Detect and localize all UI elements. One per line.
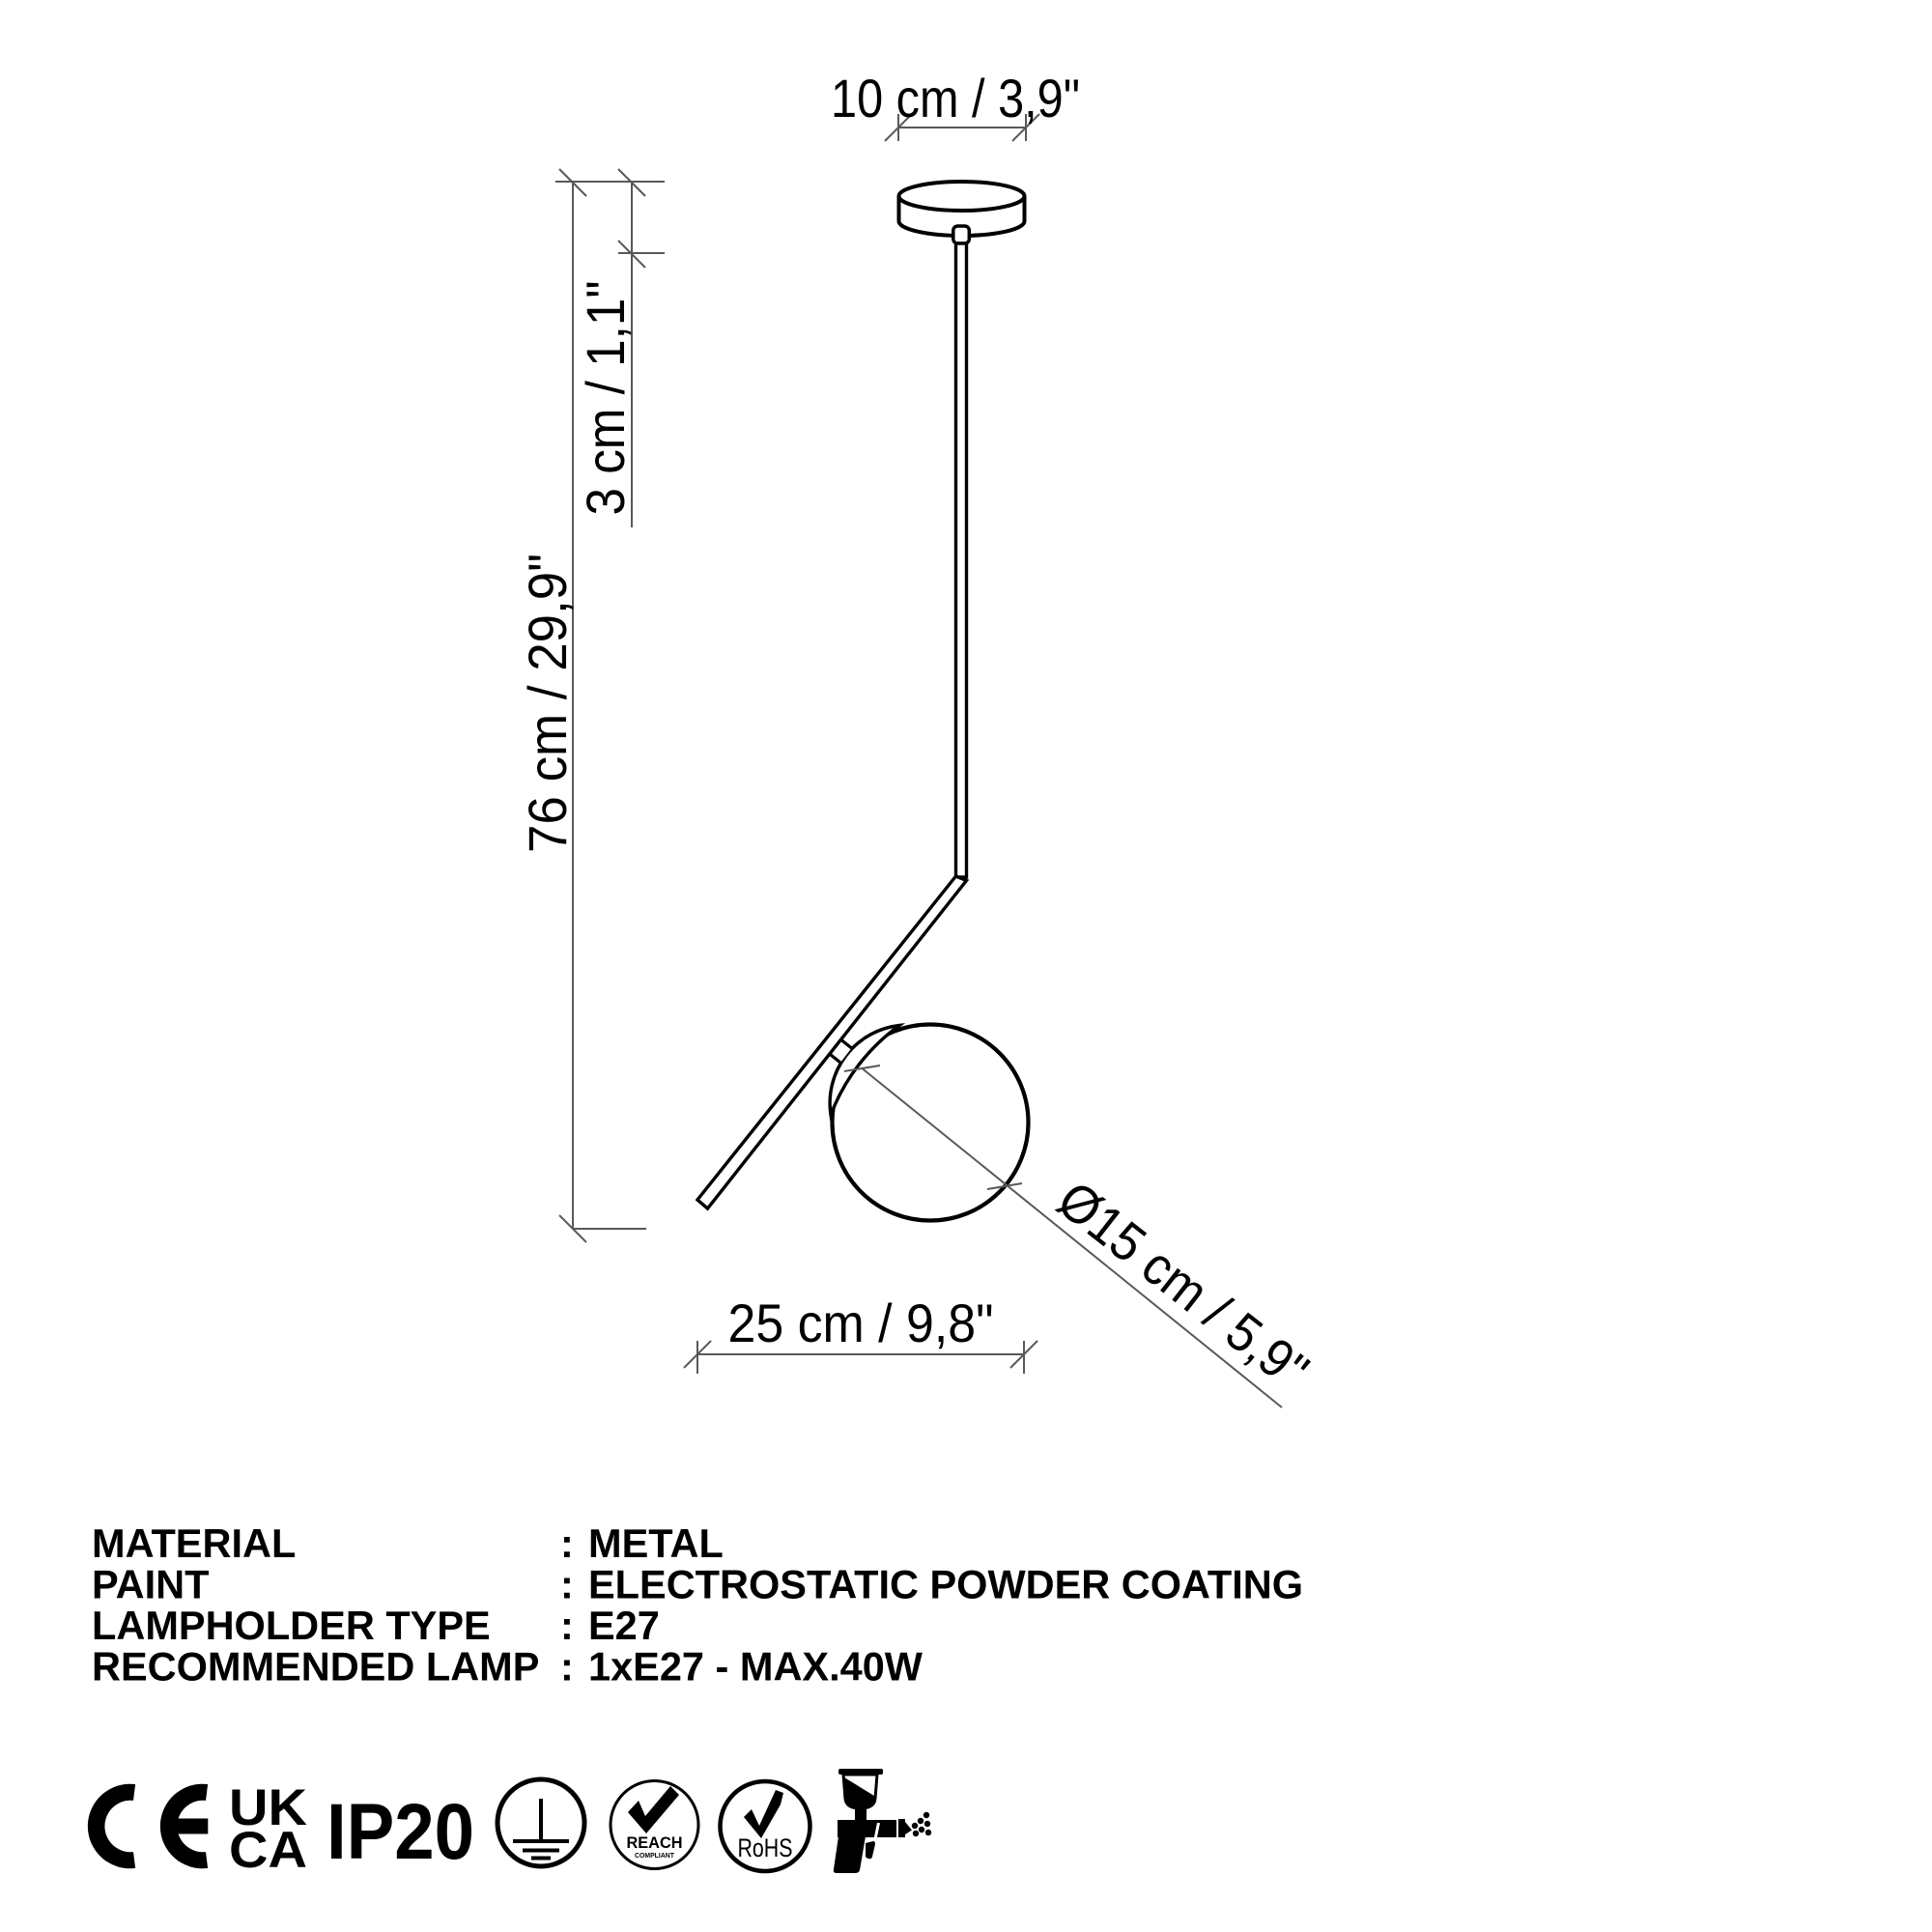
svg-text:3 cm / 1,1": 3 cm / 1,1"	[576, 281, 636, 516]
svg-text:METAL: METAL	[588, 1520, 724, 1566]
svg-text:CA: CA	[229, 1822, 307, 1879]
svg-text:COMPLIANT: COMPLIANT	[635, 1851, 674, 1860]
svg-text:1xE27 - MAX.40W: 1xE27 - MAX.40W	[588, 1644, 923, 1690]
svg-text:REACH: REACH	[627, 1834, 683, 1852]
svg-text:10 cm / 3,9": 10 cm / 3,9"	[831, 69, 1080, 128]
svg-text:IP20: IP20	[327, 1788, 474, 1876]
svg-text:ELECTROSTATIC POWDER COATING: ELECTROSTATIC POWDER COATING	[588, 1562, 1303, 1607]
svg-text::: :	[560, 1562, 574, 1607]
svg-text:E27: E27	[588, 1603, 660, 1648]
svg-text:RoHS: RoHS	[738, 1833, 793, 1862]
svg-text::: :	[560, 1520, 574, 1566]
svg-text:RECOMMENDED LAMP: RECOMMENDED LAMP	[92, 1644, 539, 1690]
svg-text:LAMPHOLDER TYPE: LAMPHOLDER TYPE	[92, 1603, 491, 1648]
svg-text::: :	[560, 1603, 574, 1648]
svg-text::: :	[560, 1644, 574, 1690]
svg-text:PAINT: PAINT	[92, 1562, 209, 1607]
svg-text:25 cm / 9,8": 25 cm / 9,8"	[728, 1293, 994, 1353]
svg-text:MATERIAL: MATERIAL	[92, 1520, 296, 1566]
svg-text:76 cm / 29,9": 76 cm / 29,9"	[518, 554, 578, 853]
